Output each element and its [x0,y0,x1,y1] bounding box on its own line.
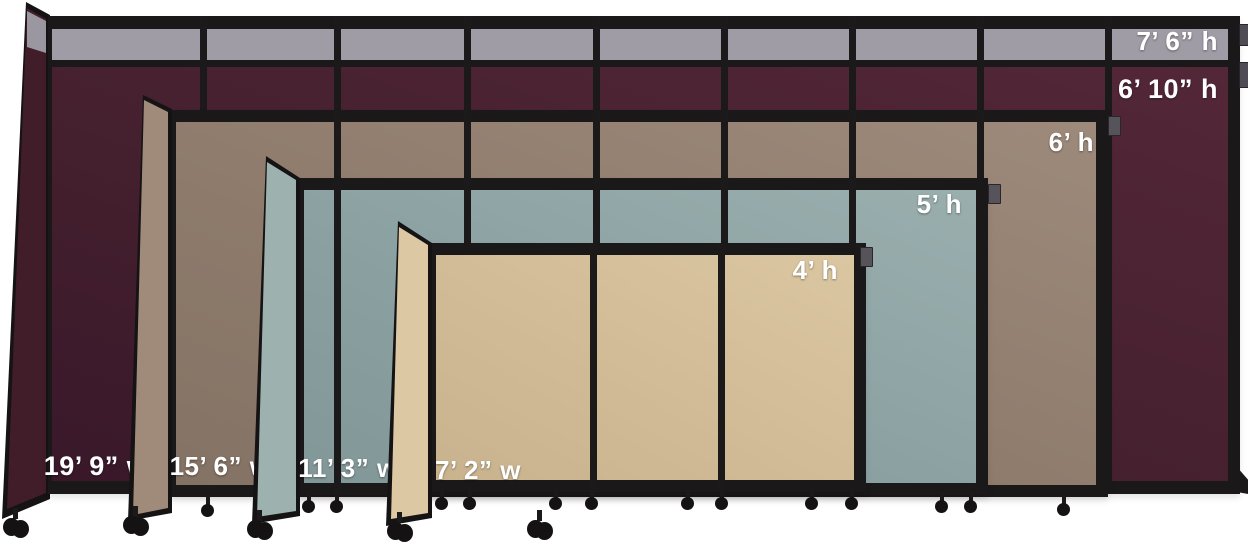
caster-wheel [584,488,600,512]
caster-wheel [462,488,478,512]
divider-tan: 4’ h 7’ 2” w [0,0,1248,542]
width-label-7ft2: 7’ 2” w [426,455,530,486]
caster-wheel [680,488,696,512]
caster-wheel [434,488,450,512]
caster-wheel [804,488,820,512]
product-size-comparison-image: 7’ 6” h 6’ 10” h 19’ 9” w 6’ h 15’ 6” w [0,0,1248,542]
caster-wheel [386,512,414,542]
caster-wheel [714,488,730,512]
caster-wheel [844,488,860,512]
caster-wheel [526,510,554,542]
tan-end-latch [860,247,873,267]
height-label-4ft: 4’ h [708,255,838,286]
caster-wheel [548,488,564,512]
tan-fabric-panels [436,255,854,480]
